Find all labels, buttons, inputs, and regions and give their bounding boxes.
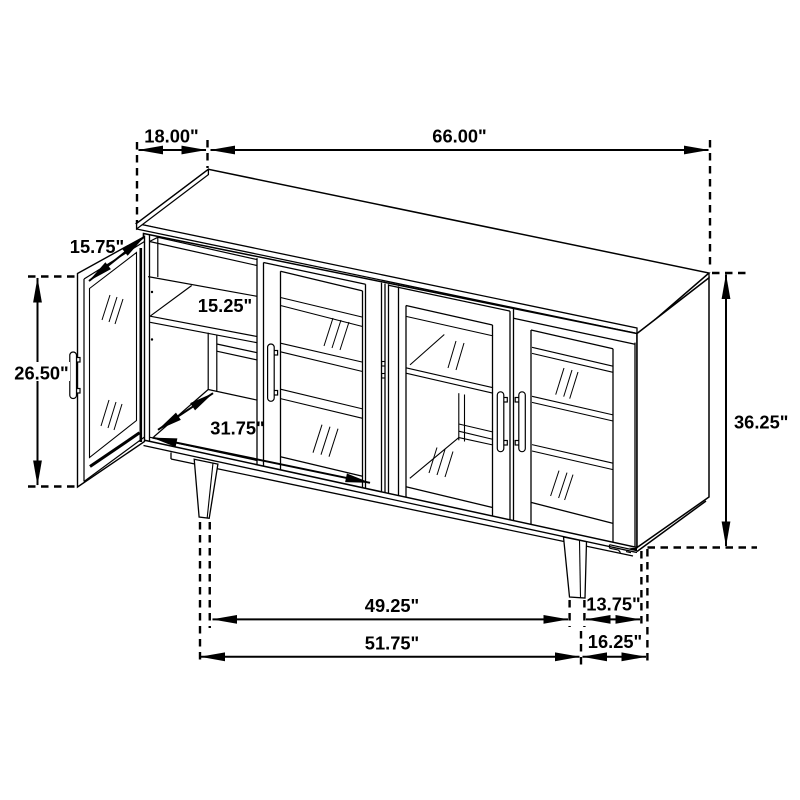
- svg-text:36.25": 36.25": [734, 412, 788, 433]
- svg-text:51.75": 51.75": [365, 633, 419, 654]
- svg-text:26.50": 26.50": [14, 363, 68, 384]
- svg-text:13.75": 13.75": [586, 594, 640, 615]
- svg-text:15.75": 15.75": [70, 236, 124, 257]
- svg-text:49.25": 49.25": [365, 595, 419, 616]
- svg-text:16.25": 16.25": [588, 631, 642, 652]
- svg-text:66.00": 66.00": [432, 126, 486, 147]
- svg-text:18.00": 18.00": [144, 126, 198, 147]
- svg-text:15.25": 15.25": [198, 295, 252, 316]
- svg-text:31.75": 31.75": [210, 418, 264, 439]
